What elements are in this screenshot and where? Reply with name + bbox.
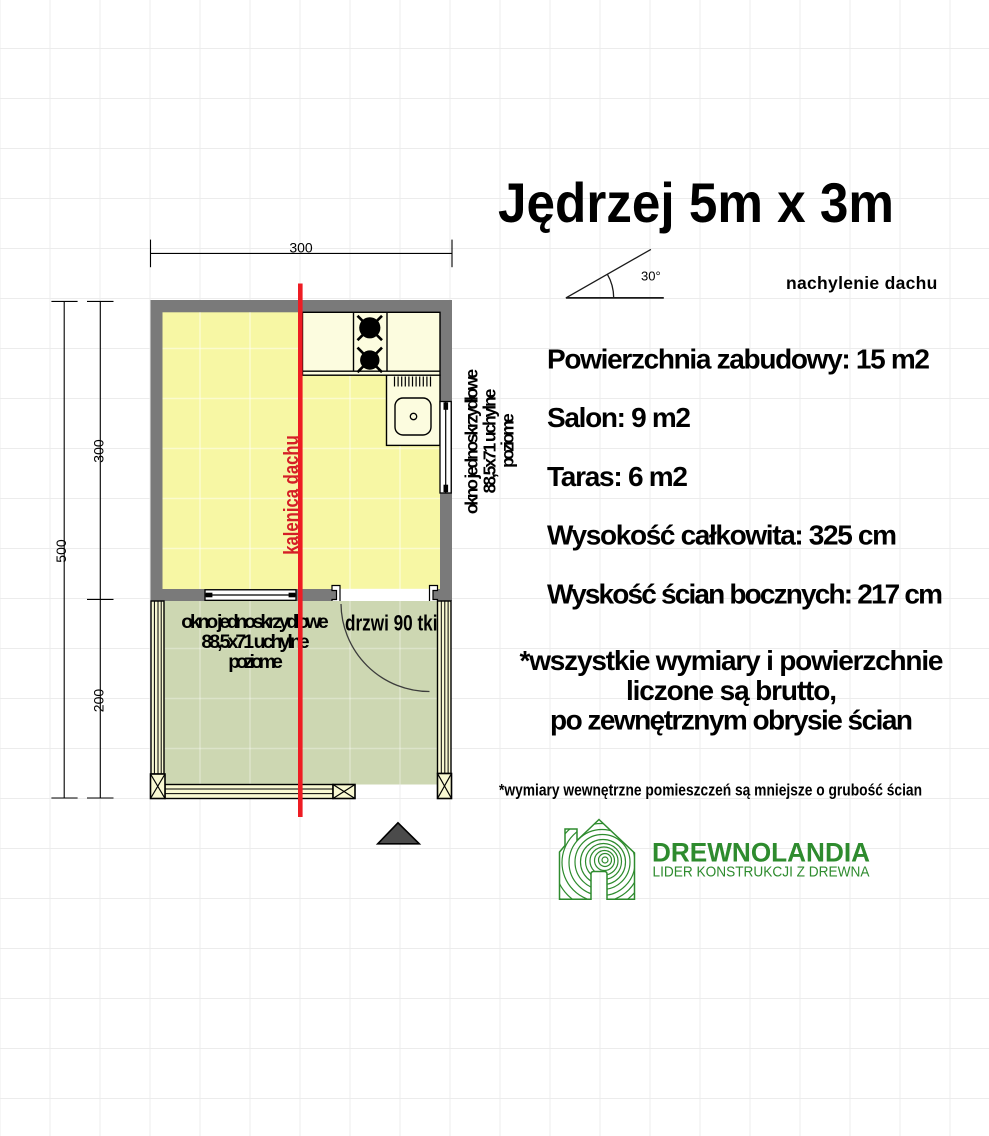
svg-text:Salon: 9 m2: Salon: 9 m2 — [547, 402, 691, 433]
svg-text:Powierzchnia zabudowy: 15 m2: Powierzchnia zabudowy: 15 m2 — [547, 344, 930, 375]
svg-text:okno jednoskrzydłowe: okno jednoskrzydłowe — [462, 369, 482, 515]
svg-text:liczone są brutto,: liczone są brutto, — [626, 675, 837, 706]
svg-text:88,5x71 uchylne: 88,5x71 uchylne — [201, 631, 309, 653]
svg-text:300: 300 — [289, 240, 313, 256]
svg-text:kalenica dachu: kalenica dachu — [281, 435, 303, 555]
svg-text:500: 500 — [53, 539, 69, 563]
svg-text:drzwi 90 tki: drzwi 90 tki — [345, 611, 438, 636]
svg-text:Wyskość ścian bocznych: 217 cm: Wyskość ścian bocznych: 217 cm — [547, 578, 943, 609]
svg-text:Taras: 6 m2: Taras: 6 m2 — [547, 461, 688, 492]
svg-text:*wszystkie wymiary i powierzch: *wszystkie wymiary i powierzchnie — [520, 645, 944, 676]
svg-text:DREWNOLANDIA: DREWNOLANDIA — [652, 838, 870, 868]
svg-text:30°: 30° — [641, 269, 661, 284]
svg-text:Jędrzej 5m x 3m: Jędrzej 5m x 3m — [498, 171, 894, 234]
svg-text:okno jednoskrzydłowe: okno jednoskrzydłowe — [181, 611, 329, 633]
svg-text:*wymiary wewnętrzne pomieszcze: *wymiary wewnętrzne pomieszczeń są mniej… — [499, 782, 922, 800]
svg-text:LIDER KONSTRUKCJI Z DREWNA: LIDER KONSTRUKCJI Z DREWNA — [653, 865, 870, 881]
svg-text:88,5x71 uchylne: 88,5x71 uchylne — [480, 388, 500, 493]
svg-text:poziome: poziome — [498, 413, 518, 468]
svg-text:poziome: poziome — [228, 651, 283, 673]
svg-text:200: 200 — [91, 689, 107, 713]
svg-text:nachylenie dachu: nachylenie dachu — [786, 273, 938, 293]
svg-text:po zewnętrznym obrysie ścian: po zewnętrznym obrysie ścian — [550, 705, 913, 736]
svg-text:Wysokość całkowita: 325 cm: Wysokość całkowita: 325 cm — [547, 520, 897, 551]
svg-text:300: 300 — [91, 439, 107, 463]
